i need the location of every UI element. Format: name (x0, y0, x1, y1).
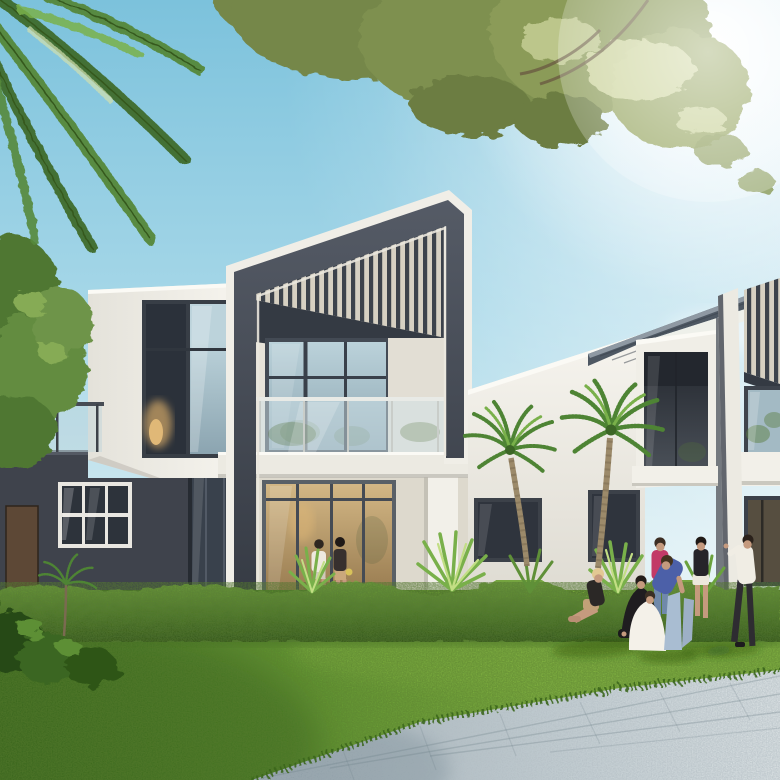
person-face (743, 540, 751, 548)
crown-center (505, 445, 515, 455)
person-face (662, 561, 671, 570)
railing-post (259, 401, 261, 452)
person-torso (334, 549, 347, 571)
person-head (335, 537, 345, 547)
window-box (632, 330, 718, 488)
person-ankle (622, 632, 627, 637)
person-head (314, 539, 324, 549)
person-face (637, 581, 645, 589)
transom (269, 376, 386, 379)
handbag (346, 569, 353, 576)
shrub-highlight (16, 618, 44, 638)
left-ground-window (58, 482, 132, 548)
person-face (646, 596, 654, 604)
foliage-highlight (38, 342, 66, 362)
mullion (675, 352, 677, 470)
canopy-blob (410, 75, 530, 135)
ground-glass-doors (262, 480, 396, 598)
person-torso (694, 549, 709, 576)
shrub-highlight (58, 639, 82, 657)
foliage-highlight (14, 290, 46, 314)
villa-rendering (0, 0, 780, 780)
tree-reflection (356, 516, 388, 564)
transom (266, 498, 392, 501)
person-face (656, 543, 664, 551)
mullion (362, 484, 365, 598)
person-hand (724, 544, 729, 549)
railing-post (347, 401, 349, 452)
railing-post (96, 404, 99, 452)
interior-glow (290, 502, 314, 542)
handrail (256, 397, 446, 401)
person-face (594, 574, 603, 583)
railing-post (391, 401, 393, 452)
person-shin (568, 616, 581, 622)
entry-door (6, 506, 38, 594)
balcony-slab (736, 452, 780, 486)
tree-reflection (400, 422, 440, 442)
slab-shadow-line (632, 483, 718, 486)
slab-shadow-line (736, 481, 780, 485)
person-legs (703, 584, 708, 618)
left-villa-window (142, 300, 238, 458)
plant-reflection (678, 442, 706, 462)
transom (146, 348, 234, 351)
railing-post (437, 401, 439, 452)
person-face (697, 542, 705, 550)
railing-post (303, 401, 305, 452)
crown-center (606, 425, 617, 436)
lamp-core (149, 419, 163, 445)
person-shoe (735, 642, 745, 647)
person-legs (695, 584, 700, 616)
louver-slats (744, 278, 780, 384)
balcony-glass (256, 397, 446, 452)
mullion (330, 484, 333, 598)
mullion (761, 500, 764, 582)
